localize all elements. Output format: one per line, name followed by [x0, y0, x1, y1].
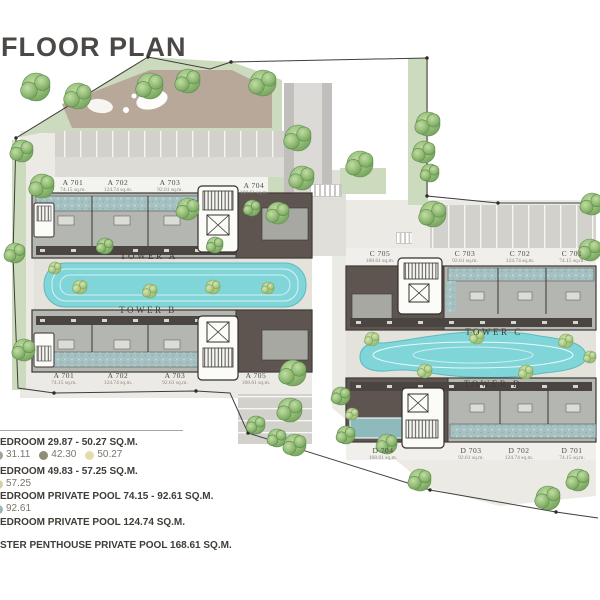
tower-b-building — [32, 310, 312, 372]
legend-dot-item: 92.61 — [0, 503, 31, 515]
legend-dot — [0, 505, 3, 514]
driveway-sidewalk — [322, 83, 332, 196]
private-pool-strip — [448, 268, 594, 281]
legend-row-header: EDROOM PRIVATE POOL 74.15 - 92.61 SQ.M. — [0, 491, 210, 503]
legend-dot-value: 31.11 — [6, 449, 30, 461]
corridor — [350, 318, 592, 327]
legend-rows: EDROOM 29.87 - 50.27 SQ.M.31.1142.3050.2… — [0, 437, 210, 552]
tower-c-core — [398, 258, 442, 314]
legend-dot-value: 57.25 — [6, 478, 31, 490]
tree-icon — [21, 73, 50, 101]
legend-dot — [0, 451, 3, 460]
stair-icon — [406, 420, 438, 438]
legend-row-header: EDROOM 29.87 - 50.27 SQ.M. — [0, 437, 210, 449]
tower-a-building — [32, 193, 312, 258]
legend-dot-item: 31.11 — [0, 449, 30, 461]
corridor — [350, 382, 592, 391]
tower-d-core — [402, 388, 444, 448]
legend-dot-value: 50.27 — [97, 449, 122, 461]
tree-icon — [336, 426, 355, 444]
stair-icon — [203, 191, 233, 210]
garden-deck-shape — [123, 107, 129, 113]
tower-c-building — [346, 266, 596, 330]
tree-icon — [4, 243, 25, 263]
private-pool-strip — [36, 196, 198, 211]
page-title: FLOOR PLAN — [1, 32, 187, 63]
legend-row-header: STER PENTHOUSE PRIVATE POOL 168.61 SQ.M. — [0, 540, 210, 552]
tower-c-label-band — [346, 248, 596, 266]
tree-icon — [346, 151, 373, 177]
legend: EDROOM 29.87 - 50.27 SQ.M.31.1142.3050.2… — [0, 430, 210, 552]
legend-dot-value: 92.61 — [6, 503, 31, 515]
penthouse-private-pool — [350, 418, 402, 438]
tower-d-building — [346, 378, 596, 442]
private-pool-strip — [450, 424, 596, 438]
parking-strip-east — [430, 205, 596, 248]
parking-strip-north — [55, 131, 284, 157]
legend-dots-row: 31.1142.3050.27 — [0, 449, 210, 461]
garden-deck-shape — [132, 94, 137, 99]
private-pool-strip — [36, 352, 198, 367]
stair-icon — [404, 263, 438, 279]
parking-aisle-north — [55, 157, 284, 177]
stair-icon — [203, 348, 233, 367]
legend-dots-row: 92.61 — [0, 503, 210, 515]
legend-dot — [39, 451, 48, 460]
legend-divider — [0, 430, 183, 431]
legend-dot-value: 42.30 — [51, 449, 76, 461]
legend-row-header: EDROOM PRIVATE POOL 124.74 SQ.M. — [0, 517, 210, 529]
floor-plan-canvas: FLOOR PLAN TOWER AA 70174.15 sq.m.A 7021… — [0, 0, 600, 600]
legend-dot — [85, 451, 94, 460]
tree-icon — [580, 193, 600, 215]
legend-row-header: EDROOM 49.83 - 57.25 SQ.M. — [0, 466, 210, 478]
legend-dot — [0, 480, 3, 489]
legend-dot-item: 42.30 — [39, 449, 76, 461]
legend-dot-item: 50.27 — [85, 449, 122, 461]
tree-icon — [64, 83, 91, 109]
tower-b-core — [198, 316, 238, 380]
legend-dots-row: 57.25 — [0, 478, 210, 490]
legend-dot-item: 57.25 — [0, 478, 31, 490]
